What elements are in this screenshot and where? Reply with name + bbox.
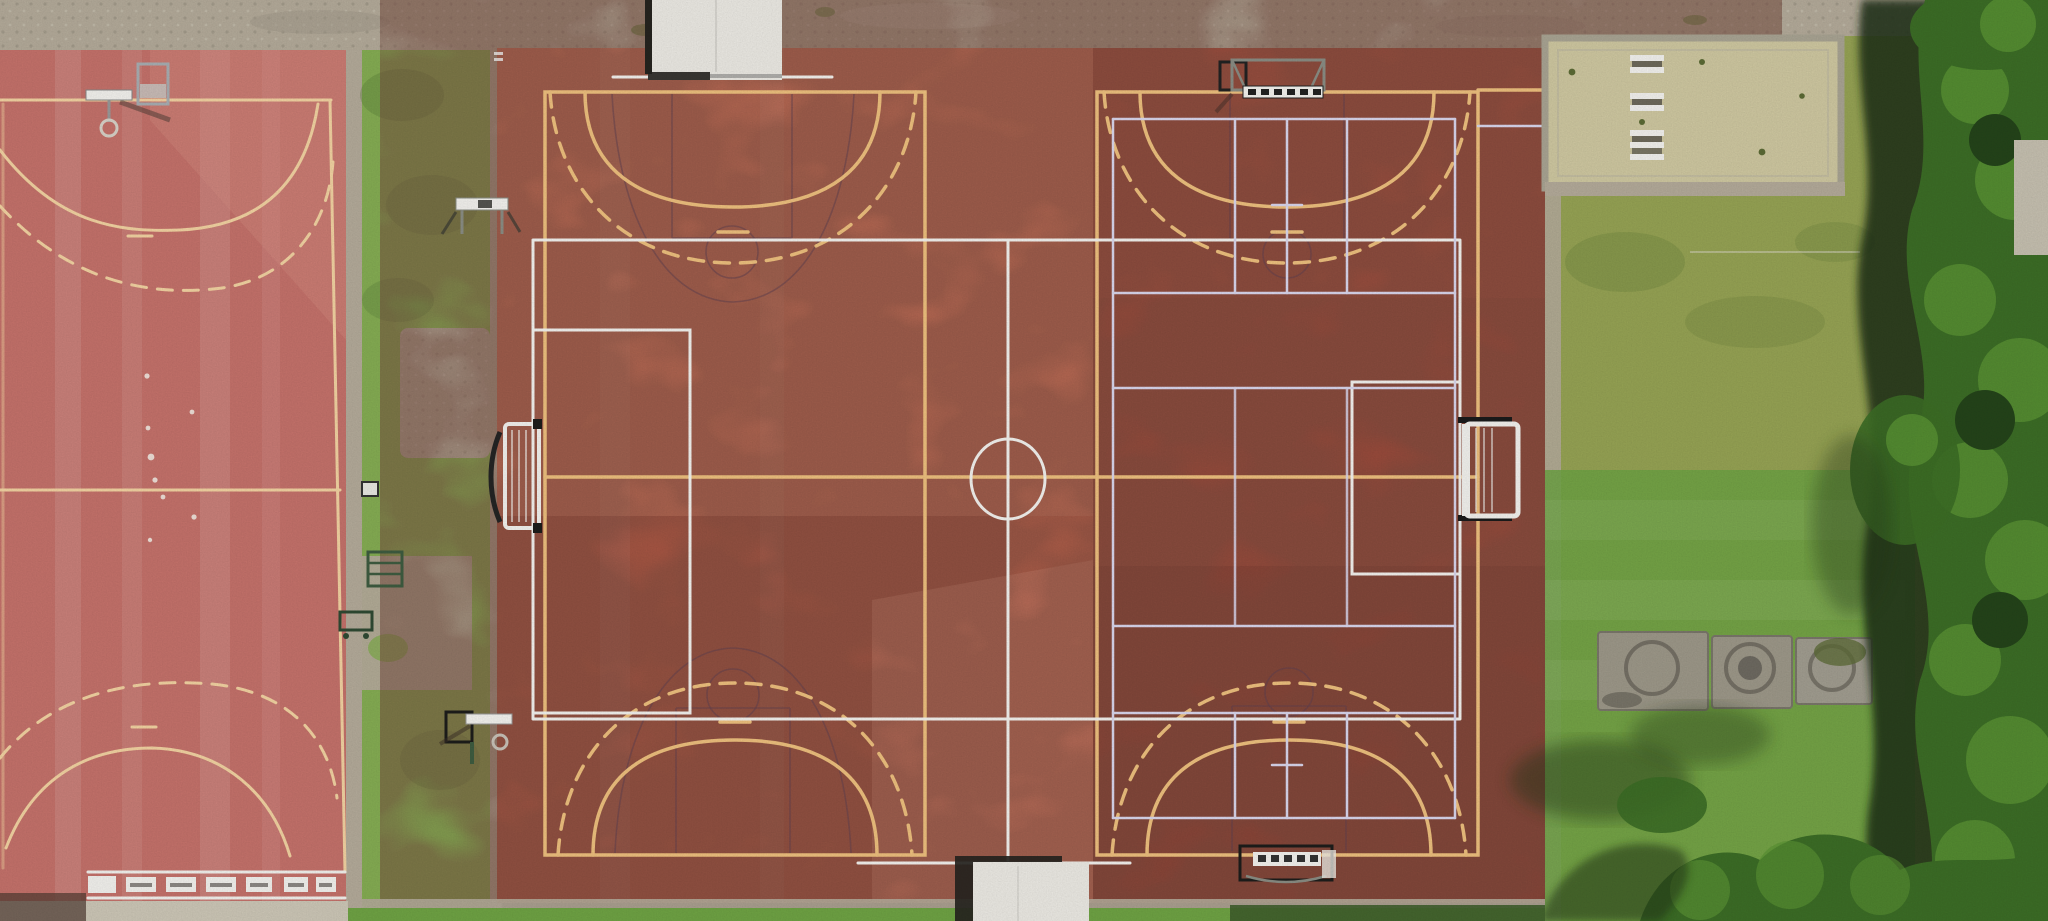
photo-grain [0,0,2048,921]
screenshot-root: Aerial top-down drone photo of outdoor s… [0,0,2048,921]
aerial-sports-courts-photo: Aerial top-down drone photo of outdoor s… [0,0,2048,921]
